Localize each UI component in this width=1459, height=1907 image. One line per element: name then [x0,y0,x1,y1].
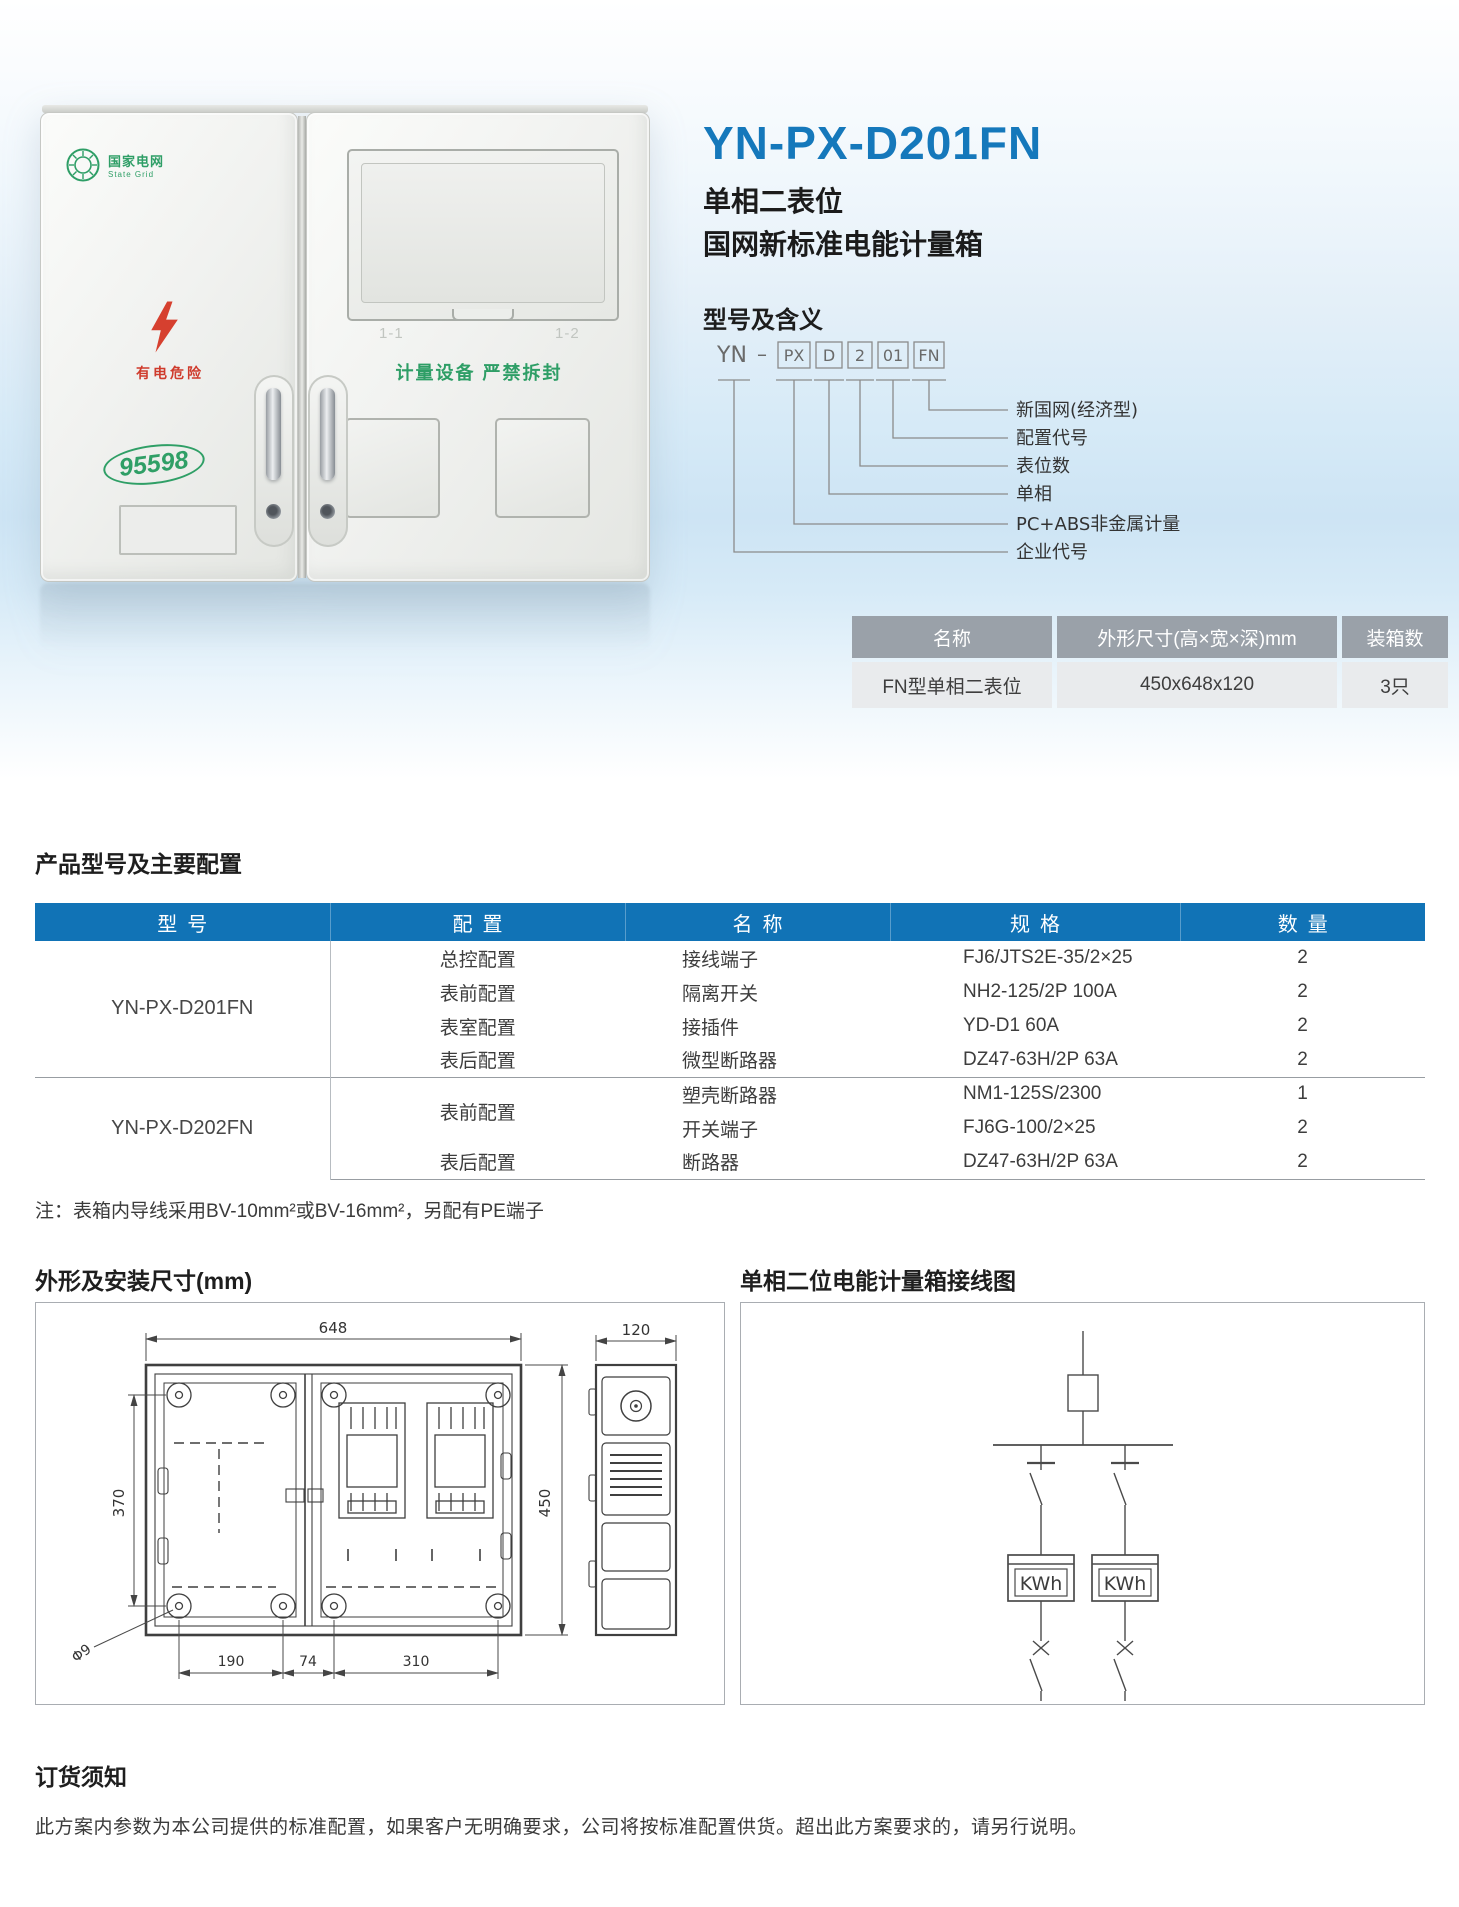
config-table-header-row: 型号 配置 名称 规格 数量 [35,903,1425,941]
seal-warning-label: 计量设备 严禁拆封 [307,359,651,385]
code-label-fn: 新国网(经济型) [1016,400,1138,421]
meter-window [347,149,619,321]
name-cell: 隔离开关 [625,975,890,1009]
front-view [146,1365,521,1635]
door-handle-right [308,375,348,547]
model-meaning-heading: 型号及含义 [703,300,823,335]
header-spec: 规格 [890,903,1180,941]
spec-cell: YD-D1 60A [890,1009,1180,1043]
hotline-logo: 95598 [101,439,207,490]
order-notice-text: 此方案内参数为本公司提供的标准配置，如果客户无明确要求，公司将按标准配置供货。超… [35,1812,1088,1839]
name-cell: 断路器 [625,1145,890,1179]
table-row: YN-PX-D201FN 总控配置 接线端子 FJ6/JTS2E-35/2×25… [35,941,1425,975]
code-label-01: 配置代号 [1016,428,1088,449]
dimensions-panel: 648 450 370 Φ9 190 74 310 120 [35,1302,725,1705]
dim-bottom-left-label: 190 [218,1654,245,1670]
dimension-drawing: 648 450 370 Φ9 190 74 310 120 [36,1303,724,1704]
table-row: YN-PX-D202FN 表前配置 塑壳断路器 NM1-125S/2300 1 [35,1077,1425,1111]
code-prefix: YN [716,343,747,368]
door-hinge-gap [298,116,306,578]
spec-cell: FJ6G-100/2×25 [890,1111,1180,1145]
name-cell: 开关端子 [625,1111,890,1145]
spec-header-size: 外形尺寸(高×宽×深)mm [1057,616,1337,658]
spec-cell-name: FN型单相二表位 [852,662,1052,708]
name-cell: 塑壳断路器 [625,1077,890,1111]
product-model-title: YN-PX-D201FN [703,116,1042,170]
nameplate [119,505,237,555]
logo-title: 国家电网 [108,151,164,170]
name-cell: 接插件 [625,1009,890,1043]
config-cell: 表后配置 [330,1043,625,1077]
keyhole-icon [266,504,281,519]
lightning-icon [147,301,181,353]
qty-cell: 1 [1180,1077,1425,1111]
dimensions-heading: 外形及安装尺寸(mm) [35,1262,252,1296]
product-subtitle-line2: 国网新标准电能计量箱 [703,223,1042,266]
qty-cell: 2 [1180,1145,1425,1179]
spec-cell: FJ6/JTS2E-35/2×25 [890,941,1180,975]
dim-hole-label: Φ9 [69,1641,95,1666]
catalog-page: 国家电网 State Grid 有电危险 95598 1-1 1-2 [0,0,1459,1907]
qty-cell: 2 [1180,1111,1425,1145]
order-notice-heading: 订货须知 [35,1758,127,1792]
code-dash: – [757,342,767,366]
kwh-meter-label: KWh [1020,1573,1063,1595]
state-grid-emblem-icon [65,147,101,183]
code-box-d: D [823,346,835,365]
side-view [589,1365,676,1635]
dim-mount-label: 370 [110,1489,128,1518]
config-note: 注：表箱内导线采用BV-10mm²或BV-16mm²，另配有PE端子 [35,1196,544,1223]
spec-cell: NM1-125S/2300 [890,1077,1180,1111]
meter-seat [339,1403,405,1518]
wiring-diagram: KWh KWh [741,1303,1424,1704]
dim-bottom-middle-label: 74 [299,1654,317,1670]
code-label-px: PC+ABS非金属计量箱 [1016,514,1180,535]
door-handle-left [254,375,294,547]
dimension-lines [94,1333,676,1679]
wiring-heading: 单相二位电能计量箱接线图 [740,1262,1016,1296]
logo-text-block: 国家电网 State Grid [108,151,164,179]
meter-window-panel [361,163,605,303]
state-grid-logo: 国家电网 State Grid [65,147,164,183]
qty-cell: 2 [1180,941,1425,975]
spec-cell-size: 450x648x120 [1057,662,1337,708]
code-label-d: 单相 [1016,484,1052,505]
photo-reflection [40,583,650,661]
wiring-panel: KWh KWh [740,1302,1425,1705]
header-config: 配置 [330,903,625,941]
config-cell: 表室配置 [330,1009,625,1043]
code-box-fn: FN [918,346,939,365]
model-cell: YN-PX-D201FN [35,941,330,1077]
dim-depth-label: 120 [622,1321,651,1339]
header-name: 名称 [625,903,890,941]
right-door: 1-1 1-2 计量设备 严禁拆封 [306,112,650,582]
config-cell: 表前配置 [330,1077,625,1145]
spec-cell: NH2-125/2P 100A [890,975,1180,1009]
config-cell: 表后配置 [330,1145,625,1179]
door-label-1-2: 1-2 [555,325,580,342]
code-box-01: 01 [883,346,903,365]
qty-cell: 2 [1180,975,1425,1009]
model-cell: YN-PX-D202FN [35,1077,330,1179]
code-label-2: 表位数 [1016,456,1070,477]
meter-cover-left [345,418,440,518]
config-cell: 总控配置 [330,941,625,975]
logo-subtitle: State Grid [108,170,164,179]
product-subtitle: 单相二表位 国网新标准电能计量箱 [703,180,1042,267]
model-code-diagram: YN – PX D 2 01 FN 新国网(经济型) 配置代号 表位数 [700,338,1180,573]
name-cell: 微型断路器 [625,1043,890,1077]
meter-seat [427,1403,493,1518]
config-section-heading: 产品型号及主要配置 [35,845,242,879]
config-table: 型号 配置 名称 规格 数量 YN-PX-D201FN 总控配置 接线端子 FJ… [35,903,1425,1180]
handle-lever [266,388,281,480]
product-photo: 国家电网 State Grid 有电危险 95598 1-1 1-2 [40,112,650,582]
config-cell: 表前配置 [330,975,625,1009]
code-box-px: PX [784,346,805,365]
spec-table: 名称 外形尺寸(高×宽×深)mm 装箱数 FN型单相二表位 450x648x12… [852,616,1448,708]
code-connector-lines [734,380,1008,552]
door-label-1-1: 1-1 [379,325,404,342]
spec-cell-qty: 3只 [1342,662,1448,708]
handle-lever [320,388,335,480]
hero-section: 国家电网 State Grid 有电危险 95598 1-1 1-2 [0,0,1459,820]
spec-header-name: 名称 [852,616,1052,658]
window-notch [452,309,514,321]
header-qty: 数量 [1180,903,1425,941]
keyhole-icon [320,504,335,519]
dim-width-label: 648 [319,1319,348,1337]
dim-height-label: 450 [536,1489,554,1518]
spec-cell: DZ47-63H/2P 63A [890,1043,1180,1077]
meter-cover-right [495,418,590,518]
spec-header-qty: 装箱数 [1342,616,1448,658]
qty-cell: 2 [1180,1043,1425,1077]
product-subtitle-line1: 单相二表位 [703,180,1042,223]
title-block: YN-PX-D201FN 单相二表位 国网新标准电能计量箱 [703,116,1042,267]
qty-cell: 2 [1180,1009,1425,1043]
code-label-yn: 企业代号 [1016,542,1088,563]
dim-bottom-right-label: 310 [403,1654,430,1670]
kwh-meter-label: KWh [1104,1573,1147,1595]
code-box-2: 2 [855,346,865,365]
name-cell: 接线端子 [625,941,890,975]
header-model: 型号 [35,903,330,941]
spec-cell: DZ47-63H/2P 63A [890,1145,1180,1179]
